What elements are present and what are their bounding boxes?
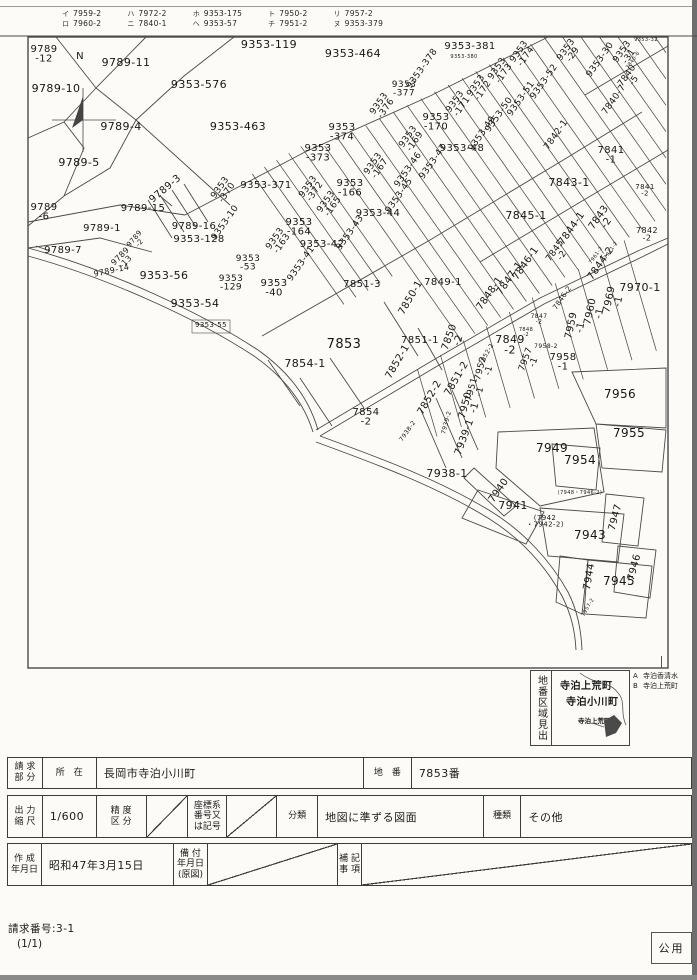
parcel-label: 7954 <box>564 453 596 467</box>
parcel-label: 7941 <box>498 499 528 512</box>
map-canvas: 9789-129789-119789-109789-49789-59353-57… <box>0 0 697 760</box>
value-bunrui: 地図に準ずる図面 <box>317 796 483 837</box>
parcel-label: 9353-164 <box>285 217 312 238</box>
parcel-label: (7948・7946-2) <box>558 490 603 496</box>
parcel-boundary-line <box>637 37 667 79</box>
value-chiban: 7853番 <box>411 758 691 788</box>
edge-point-name: 寺泊香清水 <box>643 672 678 681</box>
parcel-label: 7947 <box>607 503 625 532</box>
parcel-label: 9353-41 <box>286 244 317 283</box>
value-shozai: 長岡市寺泊小川町 <box>96 758 363 788</box>
parcel-label: 9353-380 <box>450 54 477 60</box>
parcel-label: 7854-2 <box>352 407 379 428</box>
parcel-label: N <box>76 51 84 62</box>
scan-edge-bottom <box>0 975 697 980</box>
label-output-scale: 出 力 縮 尺 <box>8 796 42 837</box>
parcel-label: 9353-53 <box>236 254 261 273</box>
parcel-label: 9353-576 <box>171 78 227 91</box>
edge-legend-row: B寺泊上荒町 <box>633 682 678 691</box>
map-edge-tick <box>661 656 662 668</box>
parcel-label: 7938-1 <box>426 467 467 480</box>
request-number: 請求番号:3-1 <box>8 921 75 936</box>
parcel-label: 9353-119 <box>241 38 297 51</box>
parcel-label: 7956 <box>604 387 636 401</box>
parcel-label: 7945 <box>603 574 635 588</box>
label-filing-date: 備 付 年月日 (原図) <box>173 844 208 885</box>
parcel-label: 9353-170 <box>422 112 449 133</box>
parcel-label: 7939-2 <box>440 410 453 435</box>
parcel-label: 9353-373 <box>304 143 331 164</box>
parcel-boundary-line <box>624 240 656 350</box>
parcel-label: 7845-2 <box>544 238 573 269</box>
parcel-label: 7957-1 <box>517 346 543 375</box>
parcel-label: 9353-32 <box>634 37 658 43</box>
edge-point-name: 寺泊上荒町 <box>643 682 678 691</box>
edge-legend-row: A寺泊香清水 <box>633 672 678 681</box>
parcel-label: 7943 <box>574 528 606 542</box>
parcel-label: 7850-1 <box>397 279 425 317</box>
cadastral-map-page: イ7959-2ロ7960-2ハ7972-2ニ7840-1ホ9353-175ヘ93… <box>0 0 697 980</box>
parcel-label: 9789-16 <box>172 221 217 232</box>
label-remarks: 補 記 事 項 <box>337 844 361 885</box>
value-remarks-empty <box>361 844 691 885</box>
district-index-inset: 地番区域見出 寺泊上荒町 寺泊小川町 寺泊上荒町 <box>530 670 630 746</box>
label-creation-date: 作 成 年月日 <box>8 844 41 885</box>
parcel-label: 9789-10 <box>32 82 81 95</box>
parcel-label: 7847-2 <box>531 313 548 326</box>
parcel-label: 7843-1 <box>548 176 589 189</box>
parcel-label: 7944 <box>582 562 598 591</box>
value-creation-date: 昭和47年3月15日 <box>41 844 173 885</box>
parcel-label: 7849-2 <box>495 333 525 356</box>
parcel-label: 7845-1 <box>505 209 546 222</box>
label-bunrui: 分類 <box>276 796 317 837</box>
parcel-label: 9789-6 <box>30 202 57 223</box>
value-filing-date-empty <box>207 844 337 885</box>
parcel-labels: 9789-129789-119789-109789-49789-59353-57… <box>30 37 660 618</box>
label-shurui: 種類 <box>483 796 521 837</box>
inset-side-label: 地番区域見出 <box>531 671 552 745</box>
parcel-label: 7970-1 <box>619 281 660 294</box>
value-precision-class-empty <box>146 796 188 837</box>
parcel-label: 9353-129 <box>219 274 244 293</box>
parcel-label: 7851-3 <box>343 279 381 290</box>
parcel-label: 9789-15 <box>121 203 166 214</box>
parcel-label: 7955 <box>613 426 645 440</box>
table-row-dates: 作 成 年月日 昭和47年3月15日 備 付 年月日 (原図) 補 記 事 項 <box>7 843 692 886</box>
page-indicator: (1/1) <box>17 938 42 950</box>
parcel-label: 9353-56 <box>140 269 189 282</box>
parcel-label: 9789-1 <box>83 223 121 234</box>
edge-point-mark: A <box>633 672 643 681</box>
value-coord-system-empty <box>226 796 276 837</box>
parcel-label: 9353-174 <box>508 39 537 70</box>
parcel-label: 9353-52 <box>529 62 560 101</box>
parcel-label: 9353-370 <box>209 175 238 206</box>
table-row-location: 請 求 部 分 所 在 長岡市寺泊小川町 地 番 7853番 <box>7 757 692 789</box>
official-use-stamp: 公用 <box>651 932 692 964</box>
parcel-label: 9353-371 <box>240 180 291 191</box>
label-coord-system: 座標系 番号又 は記号 <box>187 796 226 837</box>
parcel-label: 7851-1 <box>401 335 439 346</box>
parcel-label: 7842-2 <box>636 226 658 243</box>
parcel-label: 9353-381 <box>444 41 495 52</box>
inset-minimap <box>552 671 628 743</box>
parcel-label: 7849-1 <box>424 277 462 288</box>
parcel-label: 9789-11 <box>102 56 151 69</box>
parcel-label: 9353-464 <box>325 47 381 60</box>
parcel-label: 7841-2 <box>635 183 654 198</box>
label-precision-class: 精 度 区 分 <box>96 796 146 837</box>
parcel-label: 7853 <box>327 337 362 352</box>
parcel-label: 7854-1 <box>284 357 325 370</box>
parcel-label: 7958-2 <box>534 343 558 350</box>
parcel-label: 9353-463 <box>210 120 266 133</box>
label-shozai: 所 在 <box>42 758 96 788</box>
parcel-label: 9353-55 <box>195 321 227 329</box>
parcel-label: 9789-7 <box>44 245 82 256</box>
label-chiban: 地 番 <box>363 758 411 788</box>
parcel-label: 9789-12 <box>30 44 57 65</box>
parcel-label: 9353-29 <box>555 37 584 68</box>
edge-point-mark: B <box>633 682 643 691</box>
value-output-scale: 1/600 <box>42 796 96 837</box>
label-request-part: 請 求 部 分 <box>8 758 42 788</box>
parcel-label: 9789-4 <box>100 120 141 133</box>
parcel-label: (7942・7942-2) <box>526 514 564 529</box>
table-row-scale: 出 力 縮 尺 1/600 精 度 区 分 座標系 番号又 は記号 分類 地図に… <box>7 795 692 838</box>
parcel-label: 7843-2 <box>587 203 619 237</box>
parcel-label: 7938-2 <box>398 419 417 442</box>
parcel-label: 9353-40 <box>260 278 287 299</box>
parcel-label: 7840-7 <box>600 83 628 117</box>
parcel-label: 7841-1 <box>597 145 624 166</box>
value-shurui: その他 <box>520 796 691 837</box>
parcel-label: 9353-374 <box>328 122 355 143</box>
parcel-label: 9789-5 <box>58 156 99 169</box>
edge-point-legend: A寺泊香清水B寺泊上荒町 <box>633 672 678 691</box>
parcel-label: 9353-128 <box>173 234 224 245</box>
parcel-label: 7842-1 <box>542 118 570 152</box>
parcel-label: 9353-166 <box>336 178 363 199</box>
parcel-label: 9353-378 <box>405 47 440 91</box>
parcel-label: 9353-54 <box>171 297 220 310</box>
